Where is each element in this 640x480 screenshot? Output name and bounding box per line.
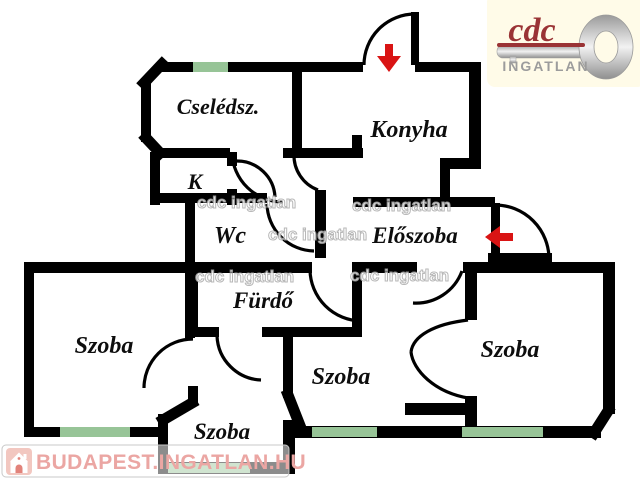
- room-label-szoba-center: Szoba: [312, 364, 371, 390]
- floorplan-svg: cdc ingatlan cdc ingatlan cdc ingatlan c…: [0, 0, 640, 480]
- house-icon-door: [16, 465, 23, 473]
- agency-logo: cdc INGATLAN: [487, 0, 640, 87]
- kamra-door-arc: [237, 161, 275, 197]
- footer-site-text: BUDAPEST.INGATLAN.HU: [36, 451, 306, 474]
- room-label-kamra: K: [187, 169, 204, 194]
- watermark-text: cdc ingatlan: [268, 225, 367, 244]
- window-left-room: [60, 427, 130, 437]
- left-room-door-arc: [144, 339, 193, 388]
- footer-badge: BUDAPEST.INGATLAN.HU: [2, 445, 306, 477]
- watermark-text: cdc ingatlan: [352, 196, 451, 215]
- window-right-room: [462, 427, 543, 437]
- room-label-szoba-left: Szoba: [75, 333, 134, 359]
- double-door-arcs: [411, 320, 468, 398]
- room-label-eloszoba: Előszoba: [371, 223, 458, 248]
- arrow-left-icon: [485, 226, 513, 248]
- watermark-text: cdc ingatlan: [197, 193, 296, 212]
- house-icon-window: [18, 457, 21, 460]
- window-top: [193, 62, 228, 72]
- logo-brand-text: cdc: [508, 12, 555, 49]
- room-label-furdo: Fürdő: [232, 288, 295, 313]
- key-bow-hole: [594, 31, 618, 63]
- watermark-text: cdc ingatlan: [195, 267, 294, 286]
- room-label-szoba-bottom: Szoba: [194, 419, 250, 444]
- entrance-door-arc: [495, 205, 549, 259]
- window-center-room: [312, 427, 377, 437]
- room-label-cseledszoba: Cselédsz.: [177, 94, 260, 119]
- arrow-down-icon: [377, 44, 401, 72]
- room-label-szoba-right: Szoba: [481, 337, 540, 363]
- room-label-wc: Wc: [214, 223, 246, 249]
- room-label-konyha: Konyha: [369, 117, 447, 143]
- logo-subtitle-text: INGATLAN: [502, 58, 589, 74]
- floorplan-page: cdc ingatlan cdc ingatlan cdc ingatlan c…: [0, 0, 640, 480]
- house-icon-chimney: [24, 454, 27, 459]
- bottom-room-door-arc: [217, 336, 261, 380]
- kitchen-door-leaf: [411, 12, 419, 65]
- watermark-text: cdc ingatlan: [350, 266, 449, 285]
- corridor-door-arc: [294, 154, 318, 190]
